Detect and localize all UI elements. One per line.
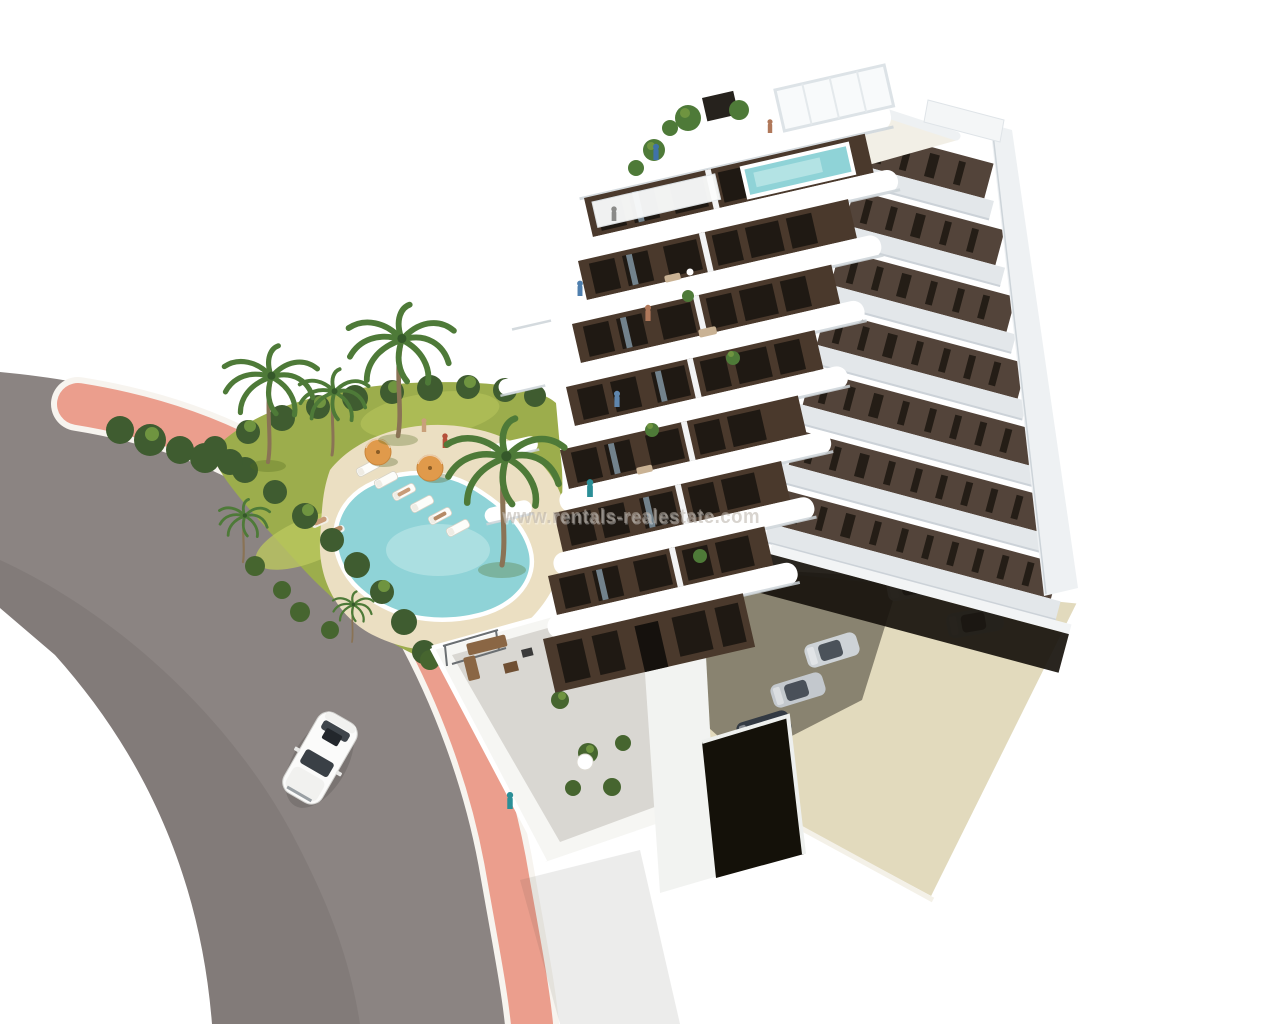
architectural-render: www.rentals-realestate.com www.rentals-r… [0,0,1280,1024]
person-balcony [614,391,620,407]
pool-highlight [386,524,490,576]
watermark: www.rentals-realestate.com www.rentals-r… [501,506,761,530]
person-roof [653,144,659,160]
render-canvas: www.rentals-realestate.com www.rentals-r… [0,0,1280,1024]
person-terrace [611,206,616,221]
garage-opening [702,716,804,878]
person-balcony [577,281,583,296]
person-pool-deck [421,418,426,432]
person-terrace [507,792,513,809]
person-balcony [645,305,651,321]
terrace-table [577,754,593,770]
person-balcony [587,479,594,497]
watermark-text: www.rentals-realestate.com [501,506,760,528]
person-roof [767,119,772,133]
